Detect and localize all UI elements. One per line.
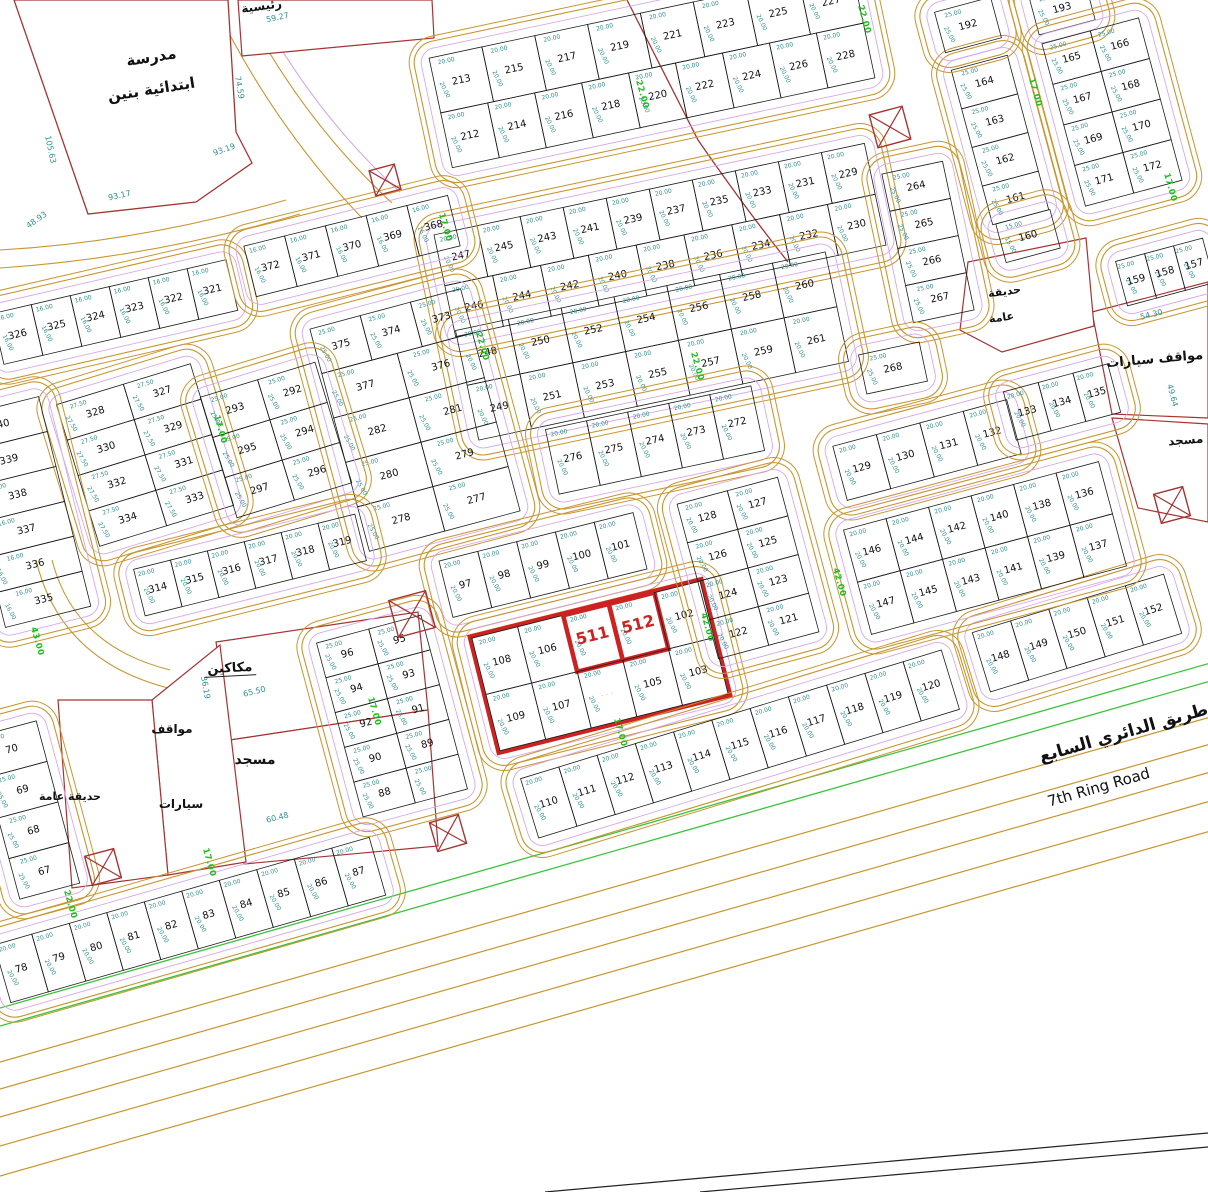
drawing-canvas: مدرسةابتدائية بنين20.0020.0021320.0020.0…	[0, 0, 1208, 1192]
arabic-landuse-text: مواقف	[151, 722, 192, 737]
cadastral-map: مدرسةابتدائية بنين20.0020.0021320.0020.0…	[0, 0, 1208, 1192]
arabic-landuse-label: مواقف	[151, 722, 192, 737]
arabic-landuse-text: مكاكين	[207, 660, 253, 677]
arabic-landuse-text: مسجد	[234, 752, 275, 768]
arabic-landuse-text: حديقة عامة	[39, 790, 101, 803]
arabic-landuse-label: مسجد	[234, 752, 275, 768]
arabic-landuse-text: سيارات	[159, 797, 203, 811]
arabic-landuse-label: سيارات	[159, 797, 203, 811]
arabic-landuse-label: حديقة عامة	[39, 790, 101, 803]
arabic-landuse-label: مكاكين	[203, 660, 256, 678]
